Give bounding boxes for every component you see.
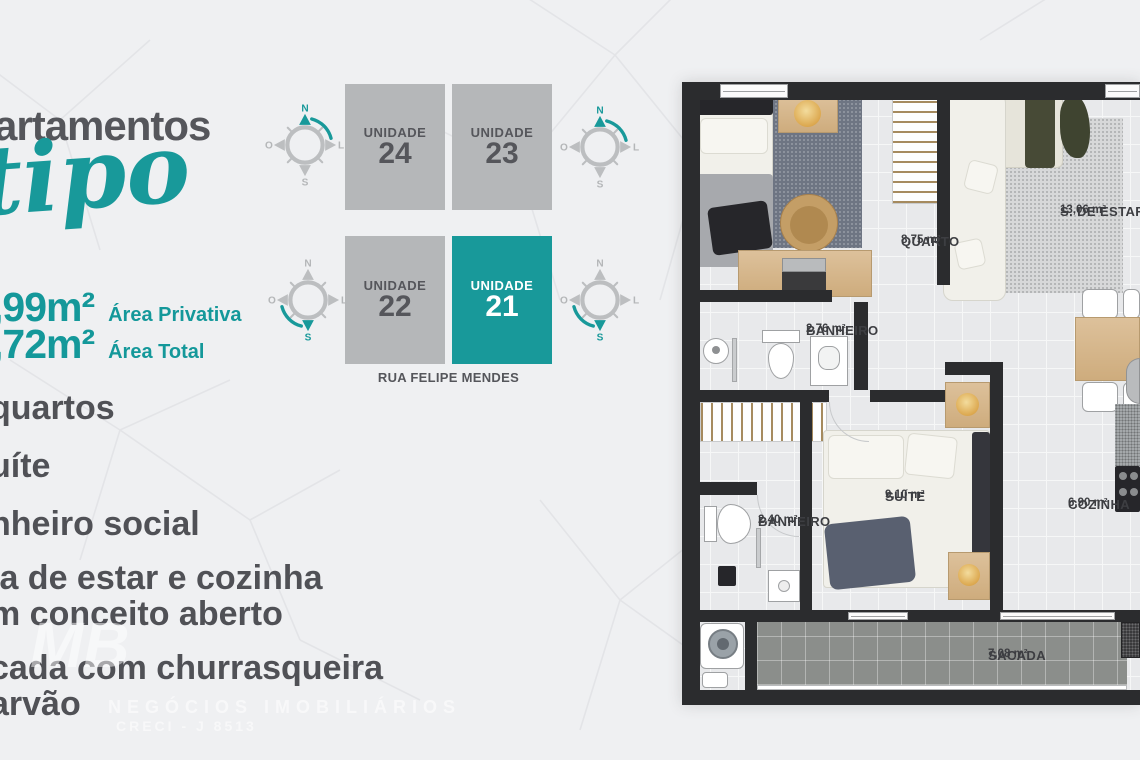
wall-laundry-stub xyxy=(745,622,757,690)
stove-burner xyxy=(1119,472,1127,480)
washer-drum-center xyxy=(717,638,729,650)
compass-l: L xyxy=(338,140,344,151)
compass-l: L xyxy=(341,295,347,306)
laptop-keyboard xyxy=(782,272,826,290)
compass-north-top-right: N L S O xyxy=(558,99,642,195)
unit-box-23: UNIDADE 23 xyxy=(452,84,552,210)
compass-north-top-left: N L S O xyxy=(263,97,347,193)
feature-bathroom: nheiro social xyxy=(0,506,510,542)
window-bedroom xyxy=(720,84,788,98)
laptop-screen xyxy=(782,258,826,272)
total-area-value: ,72m² xyxy=(0,321,94,368)
watermark-company: NEGÓCIOS IMOBILIÁRIOS xyxy=(108,697,461,718)
laundry-sink xyxy=(702,672,728,688)
compass-o: O xyxy=(265,140,273,151)
shower-bar-2 xyxy=(756,528,761,568)
suite-lamp-top xyxy=(956,393,979,416)
kitchen-sink xyxy=(1126,358,1140,404)
dining-chair xyxy=(1123,289,1140,319)
toilet-bowl-2 xyxy=(717,504,751,544)
wall-bedroom-south xyxy=(700,290,832,302)
sofa xyxy=(943,93,1006,301)
window-living xyxy=(1105,84,1140,98)
wall-bath1-south xyxy=(700,390,829,402)
dining-chair xyxy=(1082,382,1118,412)
compass-o: O xyxy=(268,295,276,306)
wall-living-south xyxy=(945,362,1003,375)
unit-24-number: 24 xyxy=(378,140,411,169)
charcoal-grill xyxy=(1121,622,1140,658)
feature-suite: uíte xyxy=(0,448,510,484)
compass-s: S xyxy=(305,332,312,343)
unit-box-22: UNIDADE 22 xyxy=(345,236,445,364)
unit-box-24: UNIDADE 24 xyxy=(345,84,445,210)
compass-l: L xyxy=(633,295,639,306)
total-area-label: Área Total xyxy=(108,341,204,364)
bathroom-valve xyxy=(718,566,736,586)
compass-o: O xyxy=(560,295,568,306)
sink-basin xyxy=(818,346,840,370)
compass-n: N xyxy=(596,258,603,269)
apartment-marketing-page: { "page": { "background_color": "#eff0f2… xyxy=(0,0,1140,760)
suite-throw xyxy=(824,516,916,591)
shower-drain xyxy=(778,580,790,592)
shower-bar xyxy=(732,338,737,382)
compass-l: L xyxy=(633,142,639,153)
private-area-label: Área Privativa xyxy=(108,304,241,327)
compass-o: O xyxy=(560,142,568,153)
shower-head-center xyxy=(712,346,720,354)
stove-burner xyxy=(1130,488,1138,496)
wall-suite-north xyxy=(870,390,945,402)
wall-corridor-divider xyxy=(937,100,950,285)
compass-s: S xyxy=(597,179,604,190)
plant xyxy=(1060,96,1090,158)
desk-chair-seat xyxy=(790,206,828,244)
watermark-creci: CRECI - J 8513 xyxy=(116,718,257,734)
bedroom-wardrobe xyxy=(892,96,938,204)
bed-pillow xyxy=(700,118,768,154)
wall-bath2-north xyxy=(700,482,757,495)
wall-bath2-east xyxy=(800,402,812,610)
table-lamp xyxy=(794,100,821,127)
stove-burner xyxy=(1130,472,1138,480)
wall-left-outer xyxy=(682,82,700,705)
balcony-floor xyxy=(757,622,1127,685)
feature-bedrooms: quartos xyxy=(0,390,510,426)
floor-plan: QUARTO 8,75 m² S. DE ESTAR 13,06 m² BANH… xyxy=(682,82,1140,705)
dining-chair xyxy=(1082,289,1118,319)
toilet-tank-2 xyxy=(704,506,717,542)
page-title-script: tipo xyxy=(0,111,194,239)
watermark-monogram: MB xyxy=(30,608,130,682)
toilet-bowl xyxy=(768,343,794,379)
kitchen-counter xyxy=(1115,404,1140,466)
unit-21-number: 21 xyxy=(485,293,518,322)
private-area-row: ,99m² Área Privativa xyxy=(0,284,242,321)
wall-bottom-outer xyxy=(693,690,1140,705)
unit-23-number: 23 xyxy=(485,140,518,169)
compass-n: N xyxy=(304,258,311,269)
suite-lamp-bottom xyxy=(958,564,980,586)
unit-box-21-highlighted: UNIDADE 21 xyxy=(452,236,552,364)
compass-south-bottom-right: N L S O xyxy=(558,252,642,348)
suite-pillow xyxy=(904,433,958,480)
compass-s: S xyxy=(302,177,309,188)
stove-burner xyxy=(1119,488,1127,496)
compass-s: S xyxy=(597,332,604,343)
area-summary: ,99m² Área Privativa ,72m² Área Total xyxy=(0,284,242,358)
compass-n: N xyxy=(301,103,308,114)
sliding-door-kitchen xyxy=(1000,612,1115,620)
compass-south-bottom-left: N L S O xyxy=(266,252,350,348)
wall-bath1-east xyxy=(854,302,868,390)
wall-suite-east xyxy=(990,375,1003,610)
sofa-green-throw xyxy=(1025,93,1055,168)
bed-throw xyxy=(707,200,773,256)
compass-n: N xyxy=(596,105,603,116)
street-label: RUA FELIPE MENDES xyxy=(345,370,552,385)
unit-22-number: 22 xyxy=(378,293,411,322)
toilet-tank xyxy=(762,330,800,343)
feature-living-1: la de estar e cozinha xyxy=(0,560,510,596)
sliding-door-suite xyxy=(848,612,908,620)
